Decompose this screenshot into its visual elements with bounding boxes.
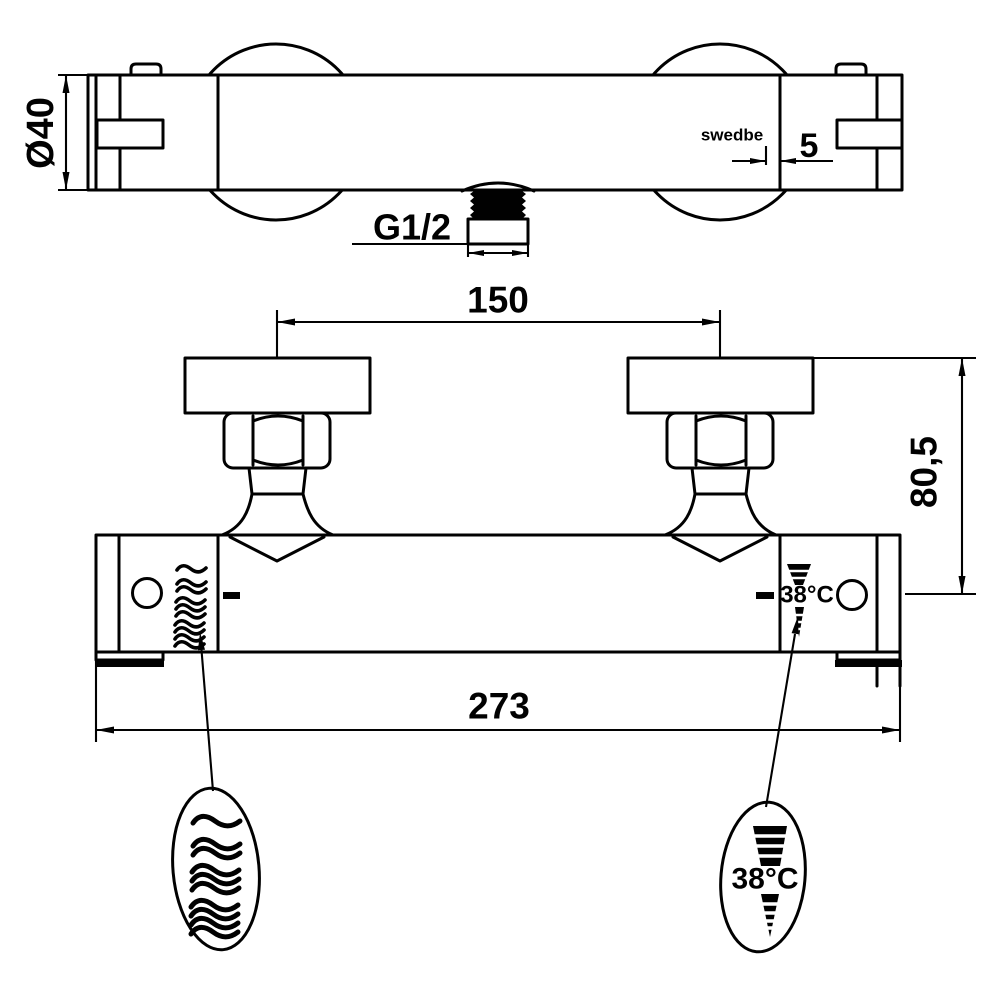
- cap-lower-edges: [119, 652, 900, 686]
- outlet-thread-block: [470, 191, 526, 219]
- left-top-tab: [131, 64, 161, 75]
- drawing-page: swedbe 5 Ø40 G1/2 150: [0, 0, 1000, 1000]
- thread-dim-text: G1/2: [373, 207, 451, 248]
- left-cone: [222, 494, 333, 535]
- diameter-dim-text: Ø40: [20, 97, 62, 169]
- height-arrowhead-down-icon: [959, 576, 966, 594]
- length-dim-text: 273: [468, 686, 530, 727]
- spacing-arrowhead-right-icon: [702, 319, 720, 326]
- height-dim-text: 80,5: [904, 436, 945, 508]
- spacing-dim-text: 150: [467, 280, 529, 321]
- flow-leader-line: [202, 650, 214, 791]
- right-hex-nut: [667, 413, 773, 468]
- top-view: swedbe 5 Ø40 G1/2: [20, 44, 902, 257]
- thread-arrowhead-left-icon: [468, 250, 484, 256]
- right-mount-tab-bar: [835, 660, 902, 667]
- left-hex-nut: [224, 413, 330, 468]
- right-index-dash-icon: [756, 592, 774, 599]
- right-top-tab: [836, 64, 866, 75]
- right-cone: [665, 494, 776, 535]
- temperature-callout: 38°C: [715, 616, 812, 955]
- spacing-arrowhead-left-icon: [277, 319, 295, 326]
- length-arrowhead-right-icon: [882, 727, 900, 734]
- left-neck: [249, 468, 306, 494]
- brand-label: swedbe: [701, 126, 763, 145]
- thread-dim-extensions: [468, 244, 528, 257]
- right-wall-plate: [628, 358, 813, 413]
- left-lever-bar: [97, 120, 163, 148]
- left-index-dash-icon: [223, 592, 240, 599]
- logo-offset-dim-text: 5: [800, 127, 819, 165]
- right-neck: [692, 468, 749, 494]
- temperature-knob-label: 38°C: [780, 582, 834, 609]
- diameter-arrowhead-down-icon: [63, 172, 70, 190]
- technical-drawing-canvas: swedbe 5 Ø40 G1/2 150: [0, 0, 1000, 1000]
- left-mount-tab-bar: [95, 660, 164, 667]
- front-view: 150: [95, 280, 976, 743]
- diameter-arrowhead-up-icon: [63, 75, 70, 93]
- flow-balloon-waves-icon: [191, 816, 240, 937]
- diameter-extension-lines: [58, 75, 88, 190]
- temperature-balloon-label: 38°C: [731, 863, 798, 896]
- temperature-leader-line: [766, 634, 795, 807]
- length-arrowhead-left-icon: [96, 727, 114, 734]
- thread-arrowhead-right-icon: [512, 250, 528, 256]
- right-mount-tab: [837, 652, 900, 660]
- left-wall-plate: [185, 358, 370, 413]
- flow-callout: [166, 632, 266, 953]
- left-mount-tab: [96, 652, 163, 660]
- right-lever-bar: [837, 120, 902, 148]
- height-arrowhead-up-icon: [959, 358, 966, 376]
- outlet-collar: [468, 219, 528, 244]
